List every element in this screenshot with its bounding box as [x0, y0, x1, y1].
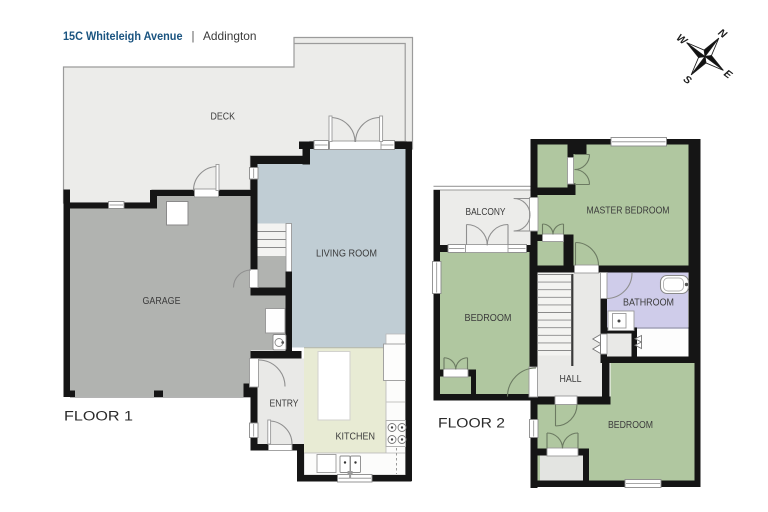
- svg-text:W: W: [674, 32, 690, 48]
- svg-text:MASTER BEDROOM: MASTER BEDROOM: [587, 206, 670, 217]
- svg-text:BEDROOM: BEDROOM: [608, 420, 653, 431]
- svg-text:GARAGE: GARAGE: [143, 296, 181, 307]
- svg-text:E: E: [721, 68, 735, 82]
- svg-text:15C Whiteleigh Avenue: 15C Whiteleigh Avenue: [63, 29, 183, 43]
- svg-text:DECK: DECK: [211, 112, 236, 123]
- svg-text:BATHROOM: BATHROOM: [623, 298, 674, 309]
- svg-text:FLOOR 1: FLOOR 1: [64, 409, 133, 424]
- svg-text:|: |: [192, 31, 195, 43]
- svg-text:ENTRY: ENTRY: [270, 399, 299, 410]
- svg-text:HALL: HALL: [560, 374, 582, 385]
- svg-text:BEDROOM: BEDROOM: [465, 313, 512, 324]
- svg-text:FLOOR 2: FLOOR 2: [438, 416, 505, 431]
- svg-text:KITCHEN: KITCHEN: [336, 432, 376, 443]
- svg-text:S: S: [681, 73, 694, 87]
- svg-text:BALCONY: BALCONY: [466, 207, 506, 218]
- svg-text:Addington: Addington: [203, 29, 257, 43]
- svg-text:LIVING ROOM: LIVING ROOM: [316, 249, 377, 260]
